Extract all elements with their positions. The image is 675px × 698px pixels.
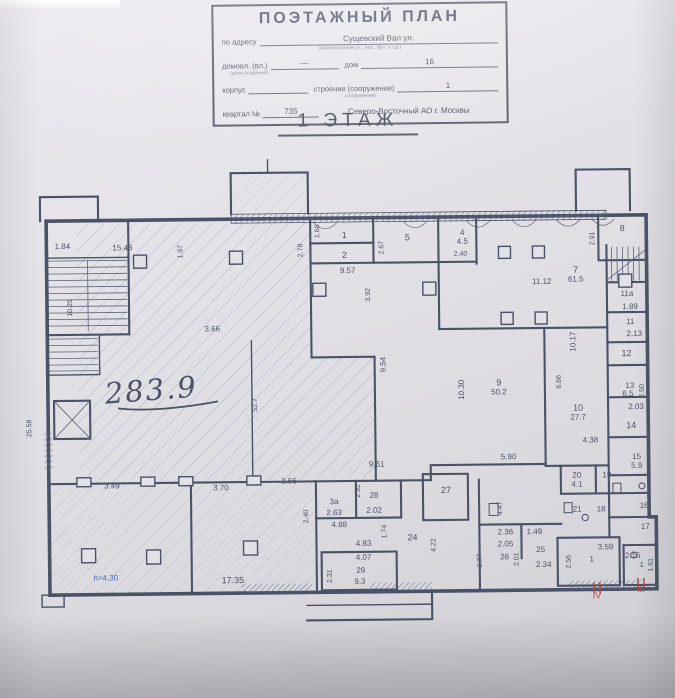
- room-24: 24: [407, 532, 417, 542]
- dim-1-49: 1.49: [527, 527, 543, 536]
- dim-52-7: 52.7: [252, 398, 259, 412]
- area-5-9: 5.9: [631, 461, 643, 470]
- dim-9-57: 9.57: [340, 266, 356, 275]
- dim-4-47: 4.47: [497, 501, 504, 515]
- dim-10-30: 10.30: [457, 379, 466, 400]
- room-9: 9: [496, 377, 501, 387]
- dim-3-66-lower: 3.66: [281, 477, 297, 486]
- dim-4-88: 4.88: [331, 520, 347, 529]
- room-3a: 3а: [330, 497, 340, 506]
- room-16: 16: [640, 501, 650, 510]
- dim-4-07: 4.07: [356, 553, 372, 562]
- dim-3-70: 3.70: [213, 483, 229, 492]
- area-4-1: 4.1: [571, 480, 583, 489]
- room-12: 12: [621, 348, 631, 358]
- room-29: 29: [356, 566, 366, 575]
- area-6-5: 6.5: [622, 389, 634, 398]
- dim-6-66: 6.66: [556, 375, 563, 389]
- room-26: 26: [500, 552, 510, 561]
- dim-2-36: 2.36: [498, 527, 514, 536]
- area-50-2: 50.2: [491, 387, 507, 396]
- area-4-5: 4.5: [457, 237, 469, 246]
- area-27-7: 27.7: [570, 413, 586, 422]
- dim-2-78: 2.78: [297, 244, 304, 258]
- dim-11-12: 11.12: [532, 277, 552, 286]
- dim-2-50: 2.50: [639, 384, 646, 398]
- dim-1-97: 1.97: [177, 245, 184, 259]
- dim-2-92: 2.92: [355, 484, 362, 498]
- dim-3-92: 3.92: [365, 288, 372, 302]
- dim-2-63: 2.63: [326, 508, 342, 517]
- dim-2-91: 2.91: [589, 231, 596, 245]
- room-10: 10: [573, 403, 583, 413]
- dim-25-58: 25.58: [26, 419, 33, 437]
- dim-3-66-hall: 3.66: [204, 324, 220, 333]
- dim-10-17: 10.17: [568, 331, 577, 352]
- dim-10-29: 10.29: [67, 299, 74, 317]
- height-note: h=4.30: [93, 573, 118, 582]
- room-28: 28: [369, 491, 379, 500]
- dim-2-05: 2.05: [498, 539, 514, 548]
- dim-4-38: 4.38: [583, 435, 599, 444]
- dim-3-49: 3.49: [104, 481, 120, 490]
- porch-step: [307, 604, 432, 605]
- hatched-areas: [48, 172, 377, 593]
- annex-top-left: [40, 197, 98, 222]
- dim-15-48: 15.48: [112, 243, 133, 252]
- room-27: 27: [441, 485, 451, 495]
- room-4: 4: [460, 228, 465, 237]
- dim-9-54: 9.54: [379, 356, 388, 372]
- dim-4-22: 4.22: [430, 538, 437, 552]
- room-11a: 11а: [620, 289, 633, 298]
- dim-1-61: 1.61: [648, 558, 655, 572]
- dim-2-67: 2.67: [378, 241, 385, 255]
- dim-1-84: 1.84: [55, 242, 71, 251]
- room-21: 21: [573, 505, 583, 514]
- room-25: 25: [536, 545, 546, 554]
- dim-1-89: 1.89: [622, 302, 638, 311]
- dim-17-35: 17.35: [222, 575, 245, 585]
- dim-2-56: 2.56: [566, 555, 573, 569]
- room-1: 1: [342, 230, 347, 240]
- floor-plan-drawing: 1.84 15.48 1.97 2.78 3.66 283.9 52.7 10.…: [0, 0, 675, 698]
- room-20: 20: [572, 471, 582, 480]
- dim-9-61: 9.61: [369, 460, 385, 469]
- room-17: 17: [641, 522, 651, 531]
- dim-2-34: 2.34: [536, 560, 552, 569]
- room-5: 5: [405, 232, 410, 242]
- dim-2-03: 2.03: [628, 402, 644, 411]
- dim-5-90: 5.90: [501, 452, 517, 461]
- annex-top-right: [576, 169, 630, 211]
- tambour-III-room: 1: [639, 560, 644, 569]
- room-19: 19: [602, 470, 612, 479]
- dim-2-40-room3a: 2.40: [303, 509, 310, 523]
- room-11: 11: [626, 317, 635, 326]
- entrance-III: III: [637, 584, 645, 594]
- room-8: 8: [620, 223, 625, 233]
- tambour-IV-room: 1: [589, 554, 594, 563]
- dim-1-74: 1.74: [381, 525, 388, 539]
- room-15: 15: [632, 452, 642, 461]
- room-2: 2: [342, 250, 347, 260]
- dim-2-77: 2.77: [477, 554, 484, 568]
- scanned-sheet: ПОЭТАЖНЫЙ ПЛАН по адресу Сущевский Вал у…: [0, 0, 675, 698]
- dim-2-01: 2.01: [514, 552, 521, 566]
- area-9-3: 9.3: [354, 577, 366, 586]
- dim-4-83: 4.83: [356, 539, 372, 548]
- dim-2-02: 2.02: [366, 506, 382, 515]
- dim-3-59: 3.59: [598, 542, 614, 551]
- dim-2-15: 2.15: [625, 551, 641, 560]
- room-7: 7: [573, 265, 578, 275]
- area-61-5: 61.5: [568, 275, 584, 284]
- dim-1-60: 1.60: [314, 224, 321, 238]
- dim-2-40-room4: 2.40: [454, 251, 468, 258]
- dim-2-31: 2.31: [327, 569, 334, 583]
- room-18: 18: [597, 504, 607, 513]
- entrance-IV: IV: [593, 590, 602, 600]
- dim-2-13: 2.13: [626, 329, 642, 338]
- room-14: 14: [626, 420, 636, 430]
